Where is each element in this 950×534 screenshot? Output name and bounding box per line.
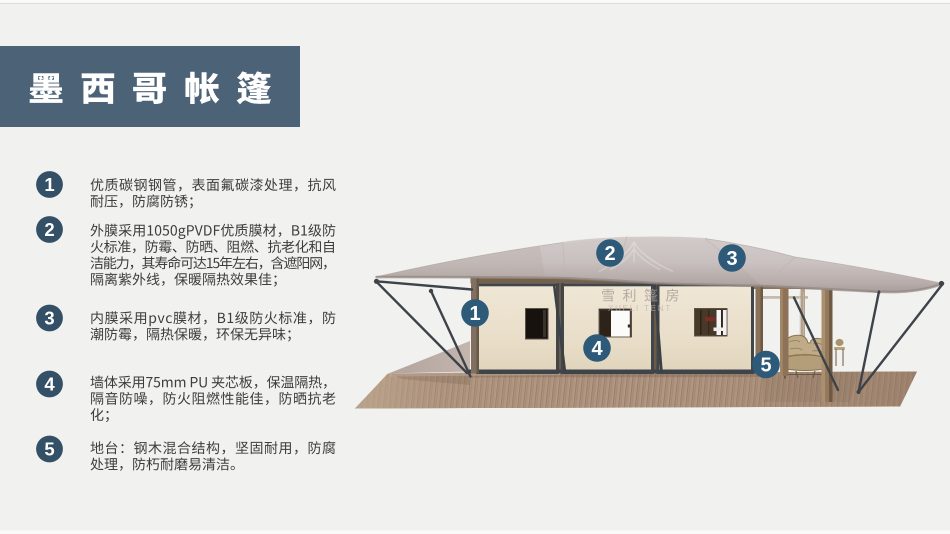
svg-text:5: 5	[44, 439, 54, 460]
svg-text:2: 2	[604, 243, 615, 265]
svg-text:2: 2	[44, 219, 54, 240]
svg-text:3: 3	[726, 248, 737, 270]
svg-text:4: 4	[44, 374, 55, 395]
svg-text:5: 5	[760, 355, 771, 377]
svg-text:4: 4	[591, 338, 603, 360]
svg-text:1: 1	[44, 174, 54, 195]
svg-text:1: 1	[469, 303, 480, 325]
svg-text:XUELI TENT: XUELI TENT	[608, 304, 672, 313]
svg-text:3: 3	[44, 308, 54, 329]
